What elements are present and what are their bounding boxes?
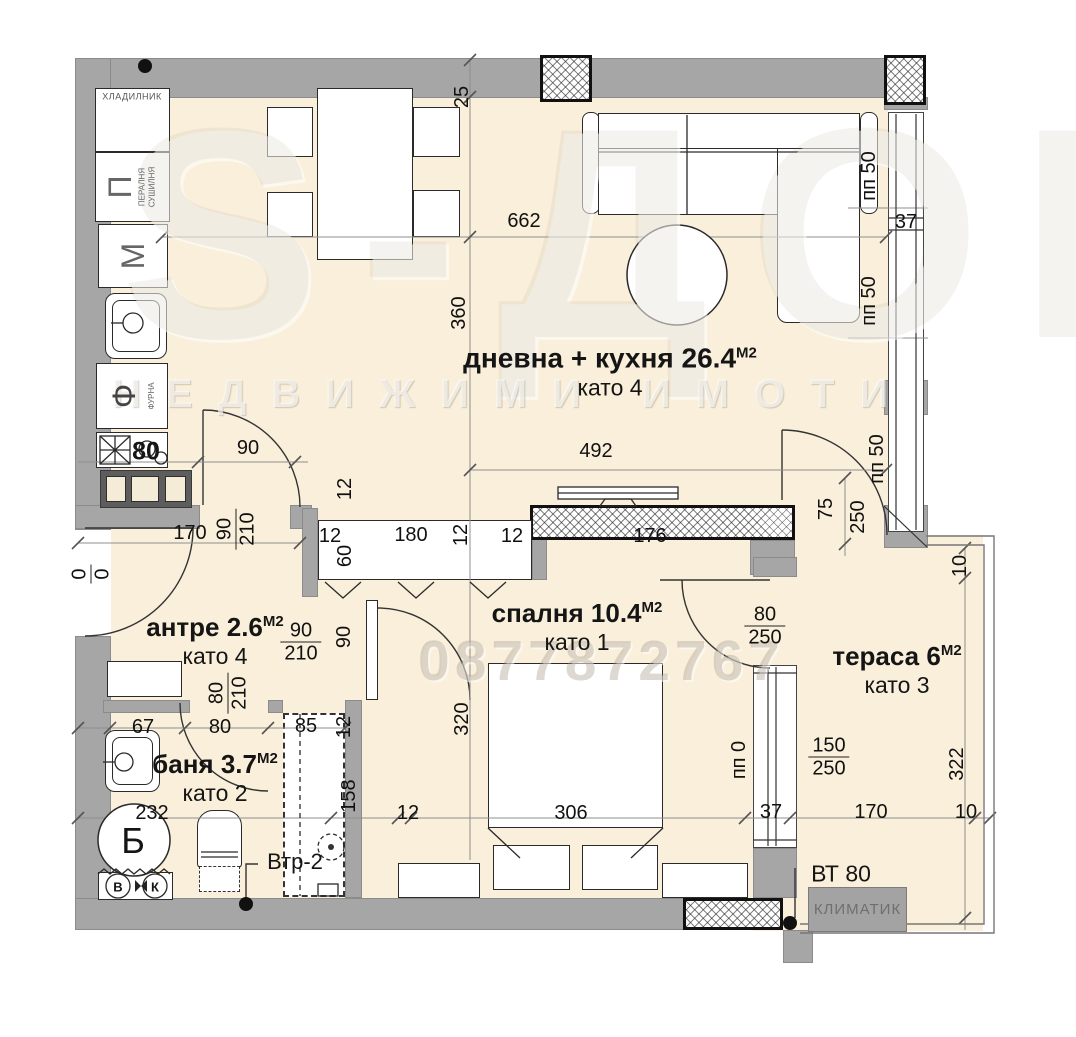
- stove-size-label: 80: [132, 440, 160, 465]
- dimension-label: 232: [135, 803, 168, 823]
- ac-label: КЛИМАТИК: [814, 901, 901, 918]
- room-name: дневна + кухня: [463, 343, 674, 374]
- ac-unit: КЛИМАТИК: [808, 887, 907, 932]
- room-label-living-kitchen: дневна + кухня 26.4М2 като 4: [463, 343, 757, 402]
- oven-letter: Ф: [108, 384, 140, 408]
- room-name: антре: [146, 612, 219, 642]
- washer-sub1: ПЕРАЛНЯ: [138, 168, 147, 206]
- dimension-label: 12: [334, 716, 354, 738]
- room-area: 10.4: [591, 598, 642, 628]
- room-kato: като 4: [463, 375, 757, 401]
- dimension-label: 75: [816, 498, 836, 520]
- dimension-label: 90: [334, 626, 354, 648]
- dimension-label: 90210: [214, 508, 259, 549]
- valve-k-label: К: [151, 881, 159, 894]
- dishwasher-letter: М: [117, 243, 149, 270]
- dimension-label: 180: [394, 525, 427, 545]
- dimension-label: 85: [295, 716, 317, 736]
- dimension-label: 60: [335, 545, 355, 567]
- dimension-label: 492: [579, 441, 612, 461]
- valve-b-label: В: [113, 881, 122, 894]
- dimension-label: пп 50: [859, 276, 879, 325]
- dimension-label: 90: [237, 438, 259, 458]
- room-label-bath: баня 3.7М2 като 2: [152, 750, 278, 806]
- room-label-terrace: тераса 6М2 като 3: [832, 642, 961, 698]
- dimension-label: 320: [452, 702, 472, 735]
- dimension-label: 170: [854, 802, 887, 822]
- plan-linework: [0, 0, 1076, 1037]
- room-label-antre: антре 2.6М2 като 4: [146, 613, 283, 669]
- washer-sub2: СУШИЛНЯ: [148, 167, 157, 207]
- dimension-label: 12: [319, 526, 341, 546]
- dimension-label: 00: [69, 564, 114, 583]
- room-unit: М2: [736, 344, 757, 361]
- dimension-label: 37: [895, 212, 917, 232]
- room-name: баня: [152, 749, 213, 779]
- dimension-label: 10: [950, 555, 970, 577]
- room-area: 3.7: [221, 749, 257, 779]
- dimension-label: 176: [633, 526, 666, 546]
- vt-label: ВТ 80: [811, 863, 871, 886]
- fridge-label: ХЛАДИЛНИК: [102, 93, 161, 102]
- dimension-label: пп 50: [867, 434, 887, 483]
- dimension-label: 250: [848, 500, 868, 533]
- dimension-label: 662: [507, 211, 540, 231]
- room-area: 6: [926, 641, 940, 671]
- dimension-label: 67: [132, 717, 154, 737]
- floor-plan: S-ДОМ НЕДВИЖИМИ ИМОТИ 0877872767 дневна …: [0, 0, 1076, 1037]
- dimension-label: 80: [209, 717, 231, 737]
- door-arcs: [85, 410, 887, 791]
- dimension-label: 158: [339, 779, 359, 812]
- room-name: спалня: [492, 598, 584, 628]
- room-label-bedroom: спалня 10.4М2 като 1: [492, 599, 663, 655]
- dimension-label: 80250: [744, 604, 785, 649]
- dimension-label: 12: [335, 478, 355, 500]
- dimension-label: 37: [760, 802, 782, 822]
- oven-sub: ФУРНА: [148, 382, 156, 409]
- room-unit: М2: [257, 750, 278, 767]
- dimension-label: 150250: [808, 735, 849, 780]
- dimension-label: 360: [449, 296, 469, 329]
- room-kato: като 4: [146, 643, 283, 669]
- dimension-label: 25: [452, 86, 472, 108]
- dimension-label: 322: [947, 747, 967, 780]
- dimension-label: 12: [397, 803, 419, 823]
- room-kato: като 2: [152, 780, 278, 806]
- room-kato: като 1: [492, 629, 663, 655]
- room-unit: М2: [642, 599, 663, 616]
- dimension-label: пп 50: [859, 151, 879, 200]
- dimension-label: 12: [501, 526, 523, 546]
- dimension-label: 12: [451, 524, 471, 546]
- dimension-label: пп 0: [729, 741, 749, 779]
- boiler-letter: Б: [121, 823, 145, 859]
- room-kato: като 3: [832, 672, 961, 698]
- washer-letter: П: [104, 176, 136, 199]
- room-area: 26.4: [682, 343, 737, 374]
- washer-sub: ПЕРАЛНЯ СУШИЛНЯ: [138, 167, 159, 207]
- dimension-label: 90210: [280, 620, 321, 665]
- room-unit: М2: [941, 642, 962, 659]
- dimension-label: 170: [173, 523, 206, 543]
- room-name: тераса: [832, 641, 919, 671]
- dimension-label: 306: [554, 803, 587, 823]
- vent-label: Втр-2: [267, 851, 323, 873]
- dimension-label: 10: [955, 802, 977, 822]
- dimension-label: 80210: [206, 672, 251, 713]
- room-area: 2.6: [227, 612, 263, 642]
